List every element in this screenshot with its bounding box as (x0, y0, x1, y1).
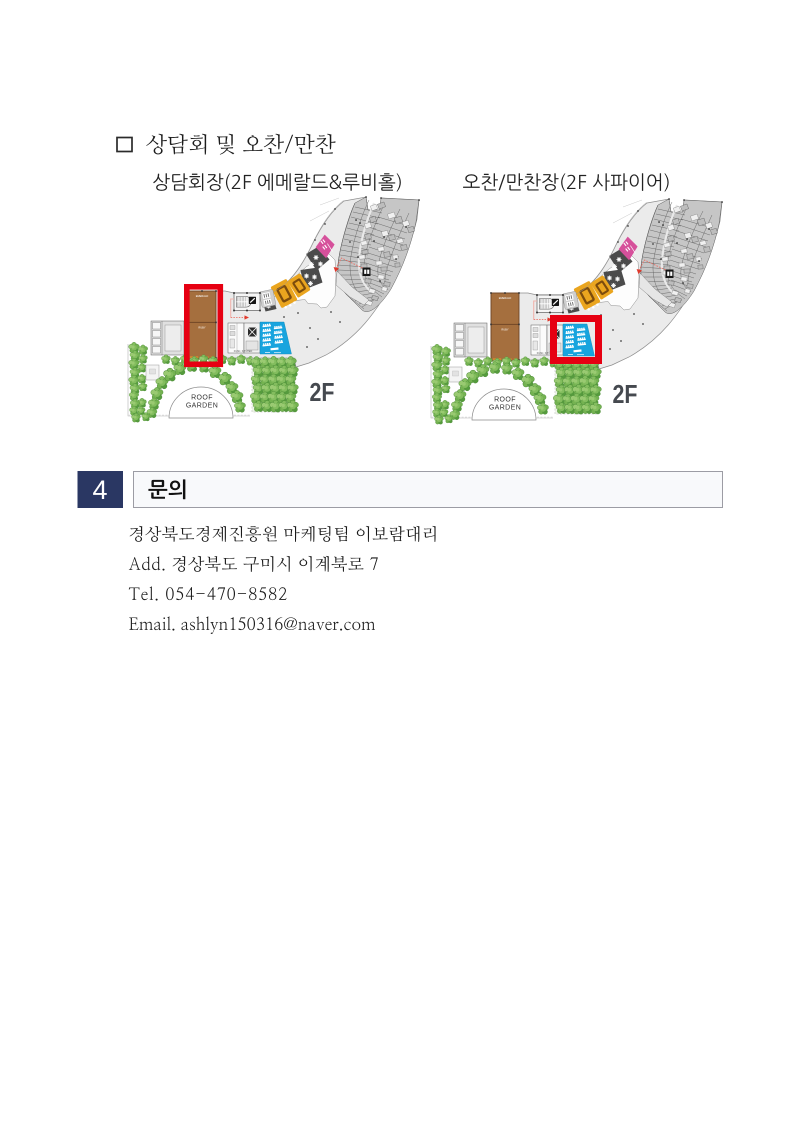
svg-text:4: 4 (92, 475, 107, 505)
